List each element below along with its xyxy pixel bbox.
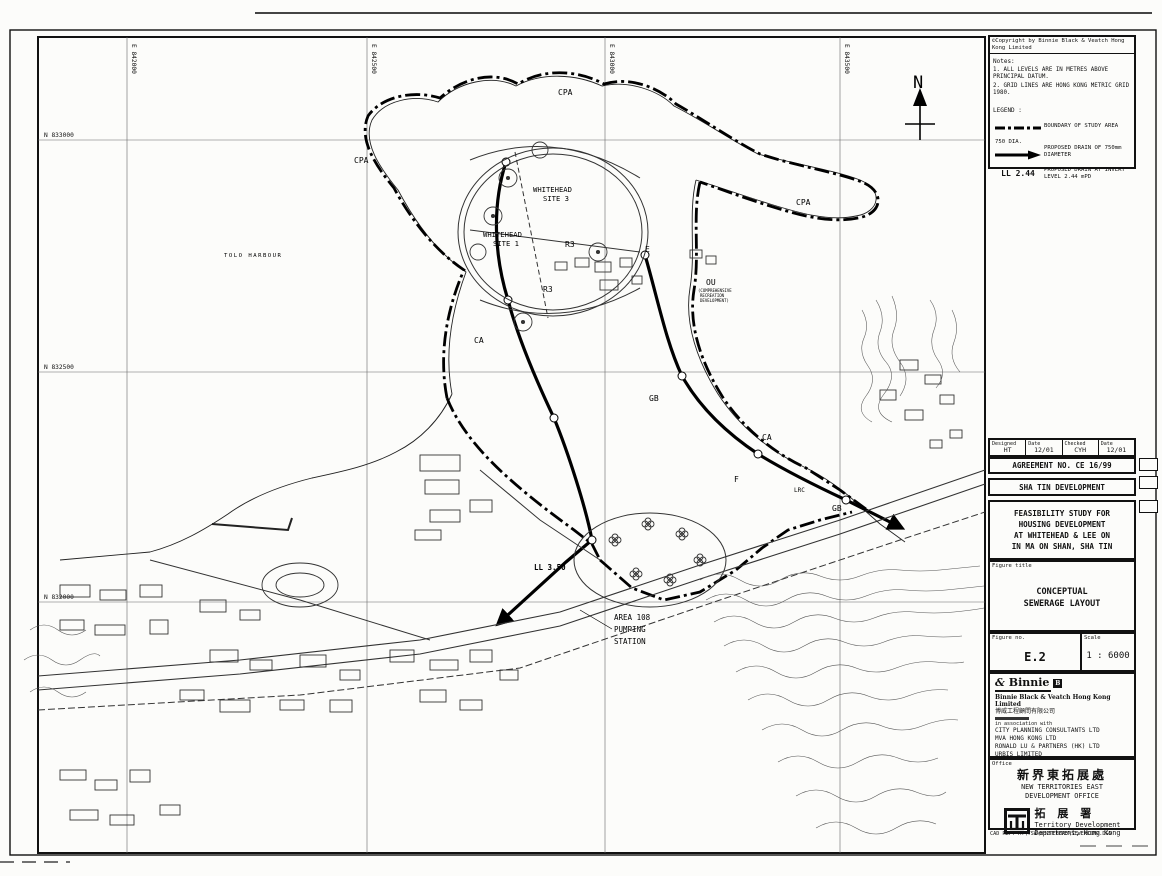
department-name-chinese: 拓 展 署 (1035, 805, 1121, 821)
zone-label-lrc: LRC (794, 487, 805, 494)
binnie-logo-name: Binnie (1009, 676, 1050, 689)
boundary-line-symbol (992, 117, 1044, 136)
drawing-sheet: E 842000 E 842500 E 843000 E 843500 N 83… (0, 0, 1162, 876)
notes-heading: Notes: (993, 58, 1131, 65)
figure-title-line: CONCEPTUAL (990, 586, 1134, 598)
binnie-rule (995, 690, 1051, 692)
zone-label-ca: CA (762, 433, 772, 442)
designed-cell: Designed HT (990, 440, 1026, 455)
legend-item-boundary: BOUNDARY OF STUDY AREA (992, 117, 1132, 136)
legend-heading: LEGEND : (993, 107, 1131, 114)
binnie-company-name: Binnie Black & Veatch Hong Kong Limited (995, 694, 1129, 708)
study-area-boundary (365, 73, 878, 600)
checked-cell: Checked CYH (1063, 440, 1099, 455)
office-name-chinese: 新界東拓展處 (991, 766, 1133, 783)
registered-mark-smudge (995, 717, 1029, 720)
drain-arrow-symbol: 750 DIA. (992, 139, 1044, 164)
tolo-harbour-label: TOLO HARBOUR (224, 253, 282, 259)
zone-label-ou: OU (706, 278, 716, 287)
figure-no-label: Figure no. (992, 635, 1025, 641)
scale-label: Scale (1084, 635, 1101, 641)
office-label: Office (992, 761, 1012, 767)
department-name-english: Territory Development (1035, 821, 1121, 829)
figure-number-scale-row: Figure no. E.2 Scale 1 : 6000 (988, 632, 1136, 672)
easting-label: E 843500 (843, 44, 850, 74)
office-name-english: DEVELOPMENT OFFICE (991, 792, 1133, 801)
buildings (60, 250, 962, 825)
legend-item-drain: 750 DIA. PROPOSED DRAIN OF 750mm DIAMETE… (992, 139, 1132, 164)
project-title-line: AT WHITEHEAD & LEE ON (1014, 530, 1110, 541)
site-label: SITE 3 (543, 194, 569, 203)
scale-cell: Scale 1 : 6000 (1082, 634, 1134, 670)
northing-label: N 833000 (44, 132, 74, 139)
designed-checked-row: Designed HT Date 12/01 Checked CYH Date … (988, 438, 1136, 457)
consultant-firm: MVA HONG KONG LTD (995, 735, 1129, 743)
estate-blocks (609, 518, 706, 586)
cad-reference: CAD REF. M:\TSW\WHITEHEAD\SEWERCOMP.DGN (990, 831, 1112, 837)
figure-title-label: Figure title (992, 563, 1032, 569)
site-roads (150, 147, 726, 640)
zone-label-f: F (734, 475, 739, 484)
figure-title-line: SEWERAGE LAYOUT (990, 598, 1134, 610)
site-label: WHITEHEAD (483, 230, 522, 239)
consultant-firm: CITY PLANNING CONSULTANTS LTD (995, 727, 1129, 735)
legend-label: PROPOSED DRAIN OF 750mm DIAMETER (1044, 145, 1132, 158)
copyright-text: ©Copyright by Binnie Black & Veatch Hong… (990, 37, 1134, 54)
legend-item-invert: LL 2.44 PROPOSED DRAIN AT INVERT LEVEL 2… (992, 167, 1132, 180)
figure-title-panel: Figure title CONCEPTUAL SEWERAGE LAYOUT (988, 560, 1136, 632)
binnie-logo-mark: B (1053, 679, 1062, 688)
binnie-logo-amp: & (995, 676, 1005, 689)
zone-label-r3: R3 (543, 285, 553, 294)
consultant-firm: RONALD LU & PARTNERS (HK) LTD (995, 743, 1129, 751)
office-name-english: NEW TERRITORIES EAST (991, 783, 1133, 792)
site-label: WHITEHEAD (533, 185, 572, 194)
zone-label-cpa: CPA (558, 88, 573, 97)
pumping-station-label: PUMPING (614, 625, 646, 634)
zone-label-ca: CA (474, 336, 484, 345)
pumping-station-label: STATION (614, 637, 646, 646)
agreement-number: AGREEMENT NO. CE 16/99 (988, 457, 1136, 474)
date-value: 12/01 (1101, 447, 1132, 454)
development-title: SHA TIN DEVELOPMENT (988, 478, 1136, 496)
invert-level-symbol: LL 2.44 (992, 169, 1044, 178)
note-item: 1. ALL LEVELS ARE IN METRES ABOVE PRINCI… (993, 67, 1131, 81)
zone-label-r3: R3 (565, 240, 575, 249)
northing-label: N 832000 (44, 594, 74, 601)
grid-lines (38, 37, 985, 853)
proposed-drains (496, 162, 902, 624)
scale-value: 1 : 6000 (1082, 651, 1134, 661)
invert-level-label: LL 3.50 (534, 563, 566, 572)
project-title-line: FEASIBILITY STUDY FOR (1014, 508, 1110, 519)
easting-label: E 843000 (608, 44, 615, 74)
zone-label-ou-sub: DEVELOPMENT) (700, 298, 729, 303)
coastline (60, 76, 905, 560)
zone-label-gb: GB (649, 394, 659, 403)
drain-annotation: 750 DIA. (995, 139, 1044, 145)
easting-label: E 842500 (370, 44, 377, 74)
sheet-frames (10, 30, 1156, 855)
date-value: 12/01 (1028, 447, 1059, 454)
binnie-company-name-chinese: 博威工程顧問有限公司 (995, 708, 1129, 716)
pumping-station-label: AREA 108 (614, 613, 651, 622)
office-panel: Office 新界東拓展處 NEW TERRITORIES EAST DEVEL… (988, 758, 1136, 830)
legend-label: PROPOSED DRAIN AT INVERT LEVEL 2.44 mPD (1044, 167, 1132, 180)
date-cell: Date 12/01 (1026, 440, 1062, 455)
easting-label: E 842000 (130, 44, 137, 74)
designed-value: HT (992, 447, 1023, 454)
site-label: SITE 1 (493, 239, 519, 248)
grid-labels: E 842000 E 842500 E 843000 E 843500 N 83… (44, 44, 850, 601)
north-label: N (913, 73, 923, 93)
zone-label-e: E (645, 245, 650, 254)
revision-box (1139, 458, 1158, 471)
figure-number-cell: Figure no. E.2 (990, 634, 1082, 670)
zone-label-cpa: CPA (354, 156, 369, 165)
notes-legend-panel: ©Copyright by Binnie Black & Veatch Hong… (988, 35, 1136, 169)
legend-label: BOUNDARY OF STUDY AREA (1044, 123, 1118, 130)
road-corridor (38, 470, 985, 710)
project-title: FEASIBILITY STUDY FOR HOUSING DEVELOPMEN… (988, 500, 1136, 560)
date-cell: Date 12/01 (1099, 440, 1134, 455)
checked-value: CYH (1065, 447, 1096, 454)
project-title-line: HOUSING DEVELOPMENT (1019, 519, 1106, 530)
revision-box (1139, 500, 1158, 513)
revision-box (1139, 476, 1158, 489)
project-title-line: IN MA ON SHAN, SHA TIN (1012, 541, 1113, 552)
northing-label: N 832500 (44, 364, 74, 371)
zone-label-gb: GB (832, 504, 842, 513)
consultants-panel: & Binnie B Binnie Black & Veatch Hong Ko… (988, 672, 1136, 758)
note-item: 2. GRID LINES ARE HONG KONG METRIC GRID … (993, 83, 1131, 97)
binnie-logo: & Binnie B (995, 677, 1129, 689)
north-arrow: N (905, 73, 935, 140)
figure-no-value: E.2 (990, 650, 1080, 664)
zone-label-cpa: CPA (796, 198, 811, 207)
